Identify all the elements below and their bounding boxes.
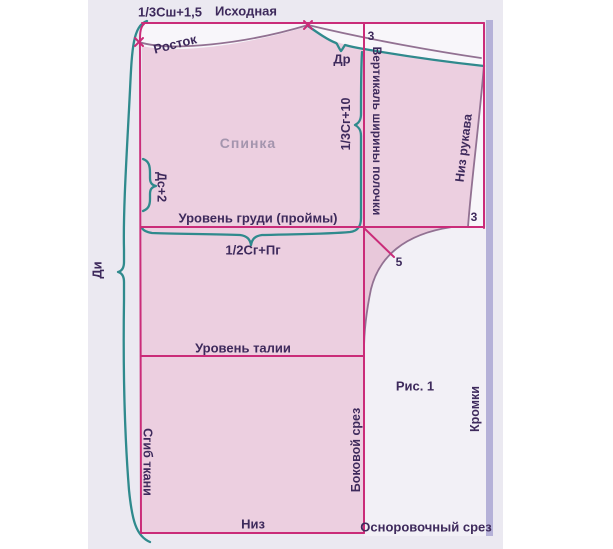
label-armhole-depth-formula: 1/3Сг+10 [340, 98, 353, 151]
label-initial-line: Исходная [215, 5, 277, 18]
label-mark-3-top: 3 [368, 30, 375, 42]
label-chest-line: Уровень груди (проймы) [178, 212, 337, 225]
back-piece-fill [141, 26, 364, 533]
sewing-pattern-diagram: 1/3Сш+1,5 Исходная Росток 3 Др Вертикаль… [0, 0, 613, 549]
label-half-chest-formula: 1/2Сг+Пг [225, 244, 280, 257]
label-garment-length: Ди [91, 261, 104, 278]
label-side-cut: Боковой срез [350, 408, 363, 492]
selvage-bar [486, 20, 493, 536]
label-leveling-cut: Осноровочный срез [360, 521, 491, 534]
label-front-width-vertical: Вертикаль ширины полочки [371, 47, 383, 216]
label-back-length-formula: Дс+2 [155, 172, 168, 202]
label-hem: Низ [241, 518, 265, 531]
label-shoulder-drop: Др [333, 53, 350, 66]
label-waist-line: Уровень талии [195, 342, 291, 355]
label-top-formula: 1/3Сш+1,5 [138, 6, 202, 19]
label-mark-5: 5 [396, 256, 403, 268]
label-back-piece: Спинка [220, 136, 276, 150]
label-fabric-fold: Сгиб ткани [141, 428, 154, 496]
label-figure-caption: Рис. 1 [396, 380, 434, 393]
label-mark-3-sleeve: 3 [471, 211, 478, 223]
label-selvage: Кромки [469, 386, 482, 432]
